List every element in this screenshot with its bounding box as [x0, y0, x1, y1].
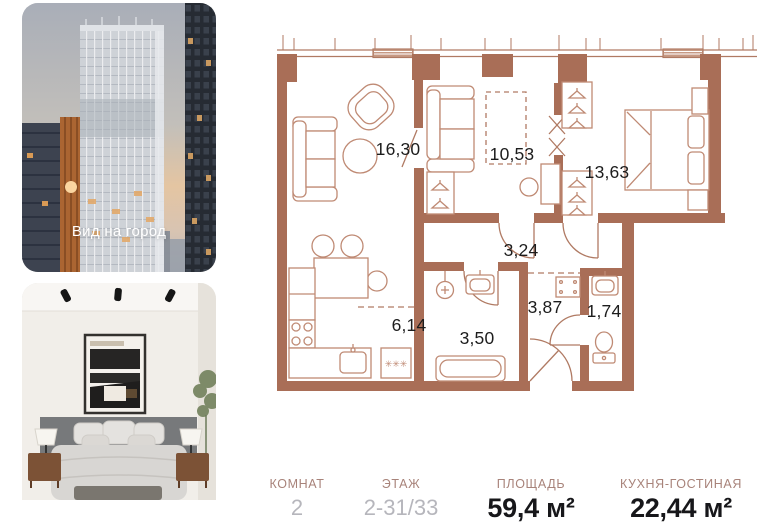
- summary-col-area: ПЛОЩАДЬ 59,4 м²: [487, 477, 574, 524]
- summary-value: 2-31/33: [364, 495, 439, 521]
- shoe-cabinet-icon: [556, 277, 580, 297]
- room-area-label: 3,24: [504, 240, 539, 260]
- kitchen-sink-icon: [289, 344, 371, 378]
- dining-set-icon: [312, 235, 387, 298]
- stool-icon: [520, 178, 538, 196]
- room-area-label: 3,87: [528, 297, 563, 317]
- floorplan: ✳✳✳: [250, 0, 770, 460]
- fridge-icon: [289, 268, 315, 320]
- room-area-label: 1,74: [587, 301, 622, 321]
- shower-icon: [437, 271, 454, 299]
- summary-col-floor: ЭТАЖ 2-31/33: [364, 477, 439, 521]
- coffee-table-icon: [343, 139, 377, 173]
- summary-label: КОМНАТ: [269, 477, 324, 491]
- facade-windows: [277, 35, 757, 58]
- armchair-icon: [343, 79, 400, 135]
- building-left: [22, 117, 86, 272]
- room-area-label: 16,30: [376, 139, 421, 159]
- summary-value: 59,4 м²: [487, 493, 574, 524]
- photo-card-bedroom[interactable]: [22, 283, 216, 500]
- room-area-label: 6,14: [392, 315, 427, 335]
- stove-icon: [289, 320, 315, 348]
- bed-icon: [625, 88, 709, 210]
- summary-value: 2: [269, 495, 324, 521]
- toilet-icon: [593, 332, 615, 363]
- summary-label: ПЛОЩАДЬ: [487, 477, 574, 491]
- room-area-label: 3,50: [460, 328, 495, 348]
- sofa-second-room-icon: [427, 86, 474, 172]
- summary-label: КУХНЯ-ГОСТИНАЯ: [620, 477, 742, 491]
- bathroom-sink-icon: [466, 270, 494, 294]
- bathtub-icon: [436, 356, 505, 381]
- sofa-living-icon: [293, 117, 337, 201]
- bedside-cabinet-icon: [692, 88, 708, 114]
- washer-icon: ✳✳✳: [381, 348, 411, 378]
- bench: [74, 486, 162, 500]
- summary-value: 22,44 м²: [620, 493, 742, 524]
- room-area-label: 13,63: [585, 162, 630, 182]
- summary-label: ЭТАЖ: [364, 477, 439, 491]
- sun-glint: [65, 181, 77, 193]
- summary-col-rooms: КОМНАТ 2: [269, 477, 324, 521]
- washer-symbol: ✳✳✳: [385, 359, 408, 369]
- wall-art: [85, 335, 145, 413]
- bedroom-dresser-icon: [688, 190, 708, 210]
- dresser-icon: [541, 164, 560, 204]
- room-area-label: 10,53: [490, 144, 535, 164]
- walls: [277, 54, 725, 391]
- photo-caption: Вид на город: [22, 223, 216, 240]
- photo-card-city-view[interactable]: Вид на город: [22, 3, 216, 272]
- summary-col-kitchen-living: КУХНЯ-ГОСТИНАЯ 22,44 м²: [620, 477, 742, 524]
- bedroom-photo: [22, 283, 216, 500]
